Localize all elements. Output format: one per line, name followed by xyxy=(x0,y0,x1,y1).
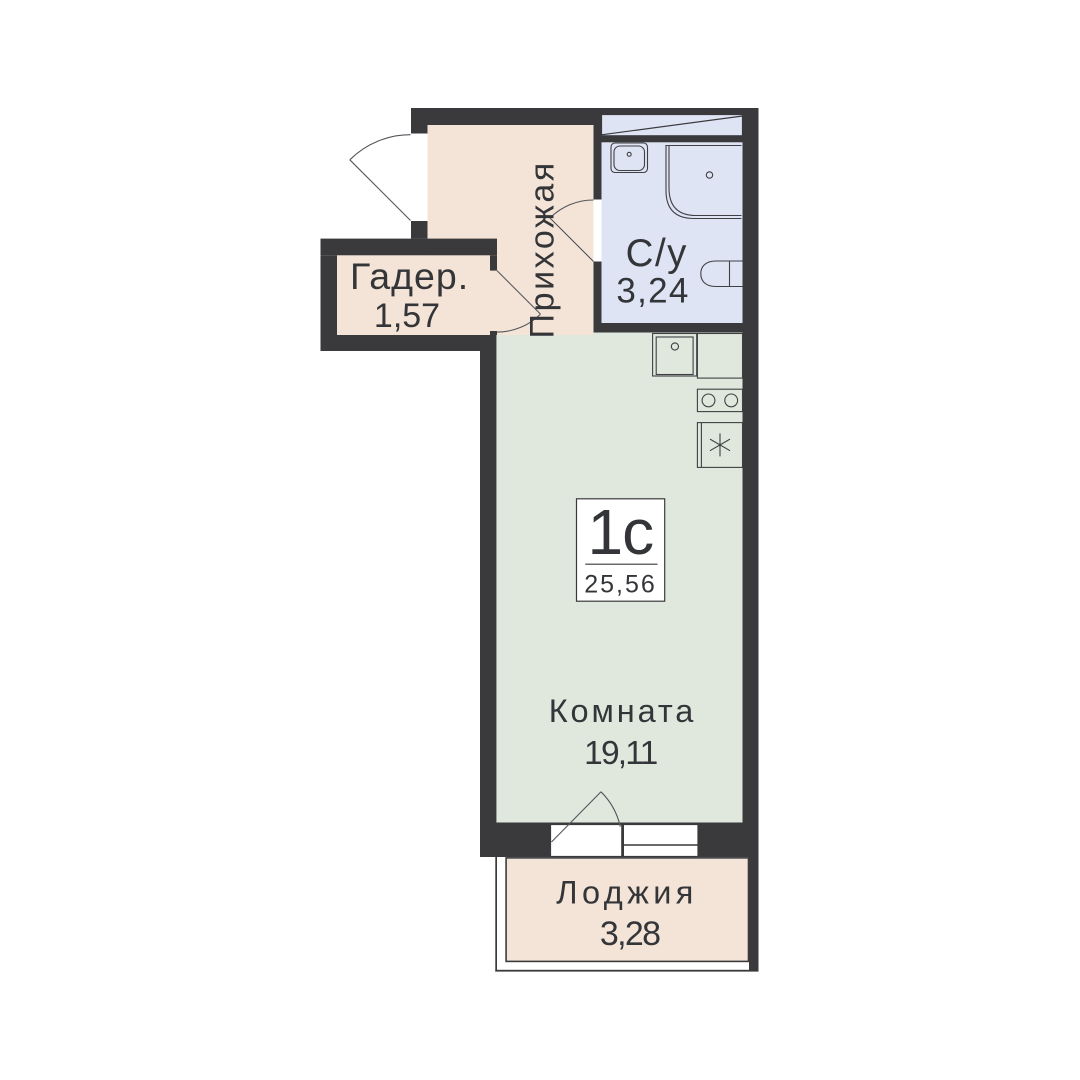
svg-text:Лоджия: Лоджия xyxy=(556,874,698,910)
svg-text:С/у: С/у xyxy=(626,232,688,275)
svg-text:Комната: Комната xyxy=(549,693,697,729)
svg-text:1,57: 1,57 xyxy=(374,297,440,335)
svg-text:19,11: 19,11 xyxy=(584,735,657,772)
svg-text:Прихожая: Прихожая xyxy=(523,160,561,338)
svg-text:25,56: 25,56 xyxy=(584,570,657,598)
svg-text:Гадер.: Гадер. xyxy=(350,255,469,297)
svg-text:3,24: 3,24 xyxy=(616,272,689,311)
svg-text:3,28: 3,28 xyxy=(600,915,660,953)
svg-text:1с: 1с xyxy=(588,496,654,568)
